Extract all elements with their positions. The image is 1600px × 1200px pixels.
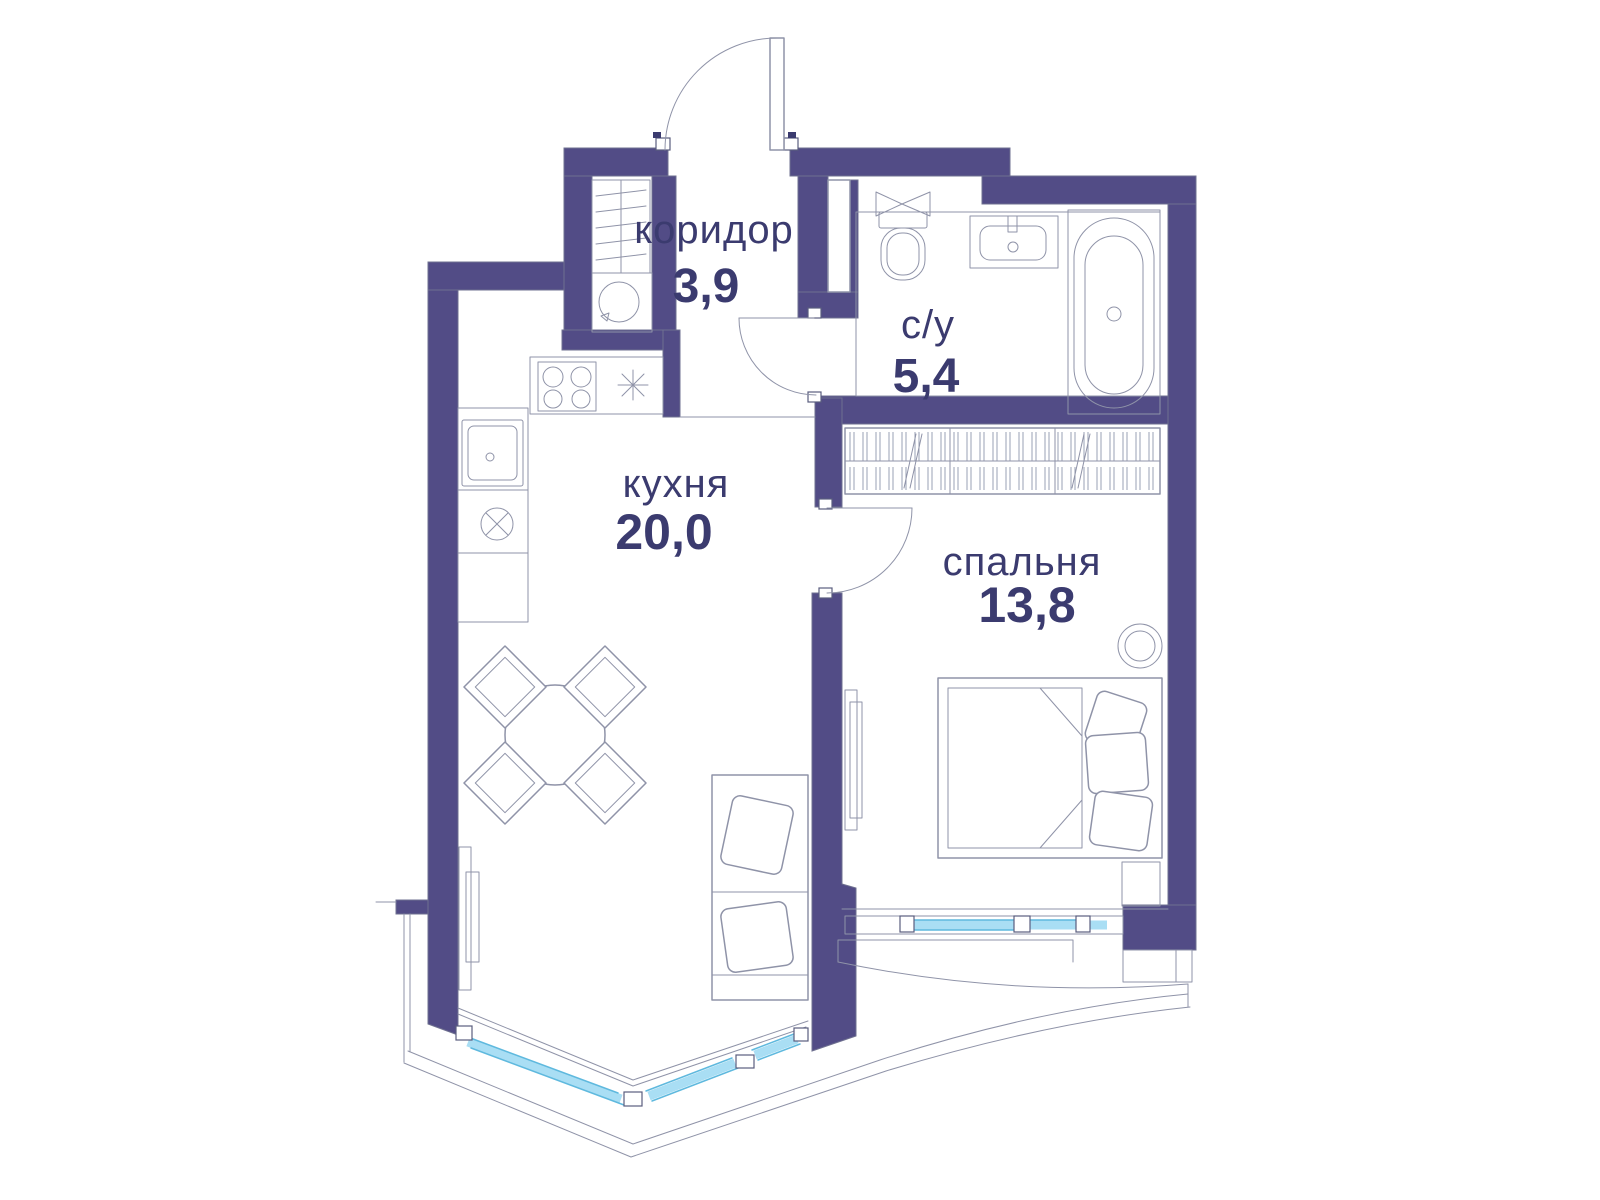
bedroom-area: 13,8 (978, 577, 1075, 633)
bathroom-name: с/у (901, 303, 955, 347)
bedroom-door (819, 499, 912, 598)
kitchen-area: 20,0 (615, 504, 712, 560)
bedroom-radiator (845, 690, 862, 830)
sofa (712, 775, 808, 1000)
entry-door-swing (665, 38, 777, 150)
bedroom-window (845, 916, 1123, 934)
room-label-bedroom: спальня 13,8 (943, 540, 1102, 633)
bay-window (456, 1008, 808, 1106)
drain-symbol (481, 508, 513, 540)
room-label-bathroom: с/у 5,4 (893, 303, 960, 403)
wardrobe (845, 428, 1160, 494)
washbasin (970, 216, 1058, 268)
floor-plan-canvas: коридор 3,9 с/у 5,4 кухня 20,0 спальня 1… (0, 0, 1600, 1200)
bathroom-door (739, 308, 821, 402)
entry-door (653, 38, 798, 150)
kitchen-radiator (459, 847, 479, 990)
light-symbol (618, 370, 648, 400)
entry-door-leaf (770, 38, 784, 150)
kitchen-name: кухня (623, 462, 730, 506)
bathtub (1068, 210, 1160, 414)
pillow (1085, 732, 1149, 794)
bathroom-area: 5,4 (893, 350, 960, 403)
floor-plan: коридор 3,9 с/у 5,4 кухня 20,0 спальня 1… (0, 0, 1600, 1200)
room-label-kitchen: кухня 20,0 (615, 462, 729, 560)
corridor-area: 3,9 (673, 260, 740, 313)
kitchen-sink (462, 420, 523, 486)
nightstand (1122, 862, 1160, 906)
corridor-name: коридор (634, 208, 794, 252)
pillow (1089, 790, 1154, 852)
floor-lamp (1118, 624, 1162, 668)
double-bed (938, 678, 1162, 858)
washing-machine (592, 273, 652, 332)
pillow (720, 901, 794, 974)
toilet (879, 212, 927, 280)
cooktop (538, 362, 596, 411)
pillow (719, 794, 794, 875)
shaft (828, 180, 850, 292)
